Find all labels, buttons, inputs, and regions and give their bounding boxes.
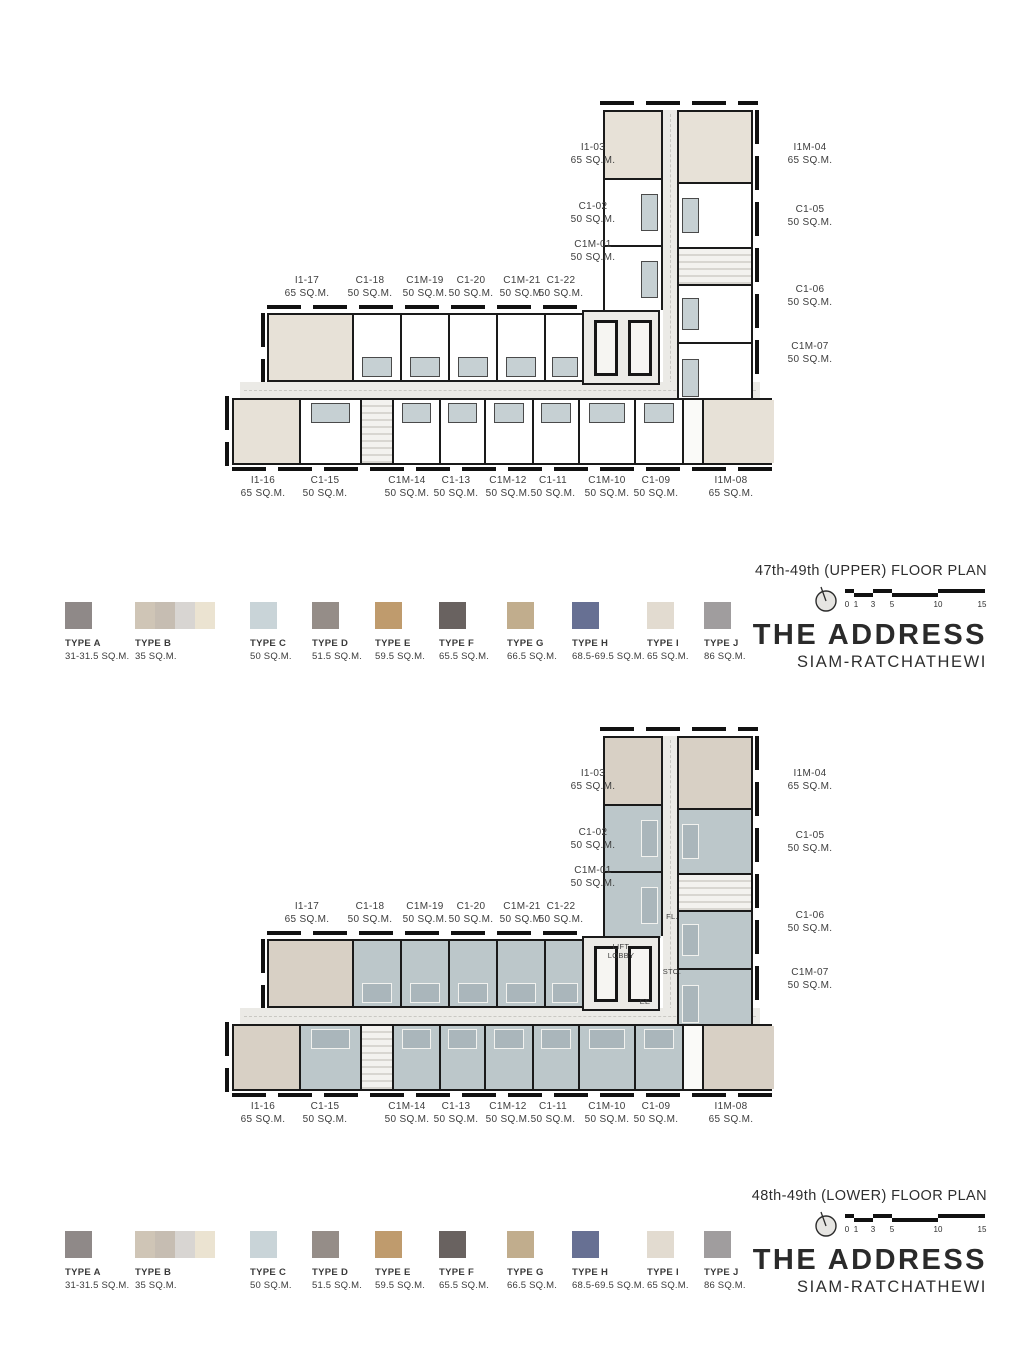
unit-id: I1M-04 [788, 768, 833, 781]
unit-label: C1-1350 SQ.M. [434, 1101, 479, 1126]
unit-cell [269, 941, 352, 1006]
unit-size: 65 SQ.M. [571, 155, 616, 168]
unit-label: C1M-1950 SQ.M. [403, 901, 448, 926]
unit-size: 65 SQ.M. [571, 781, 616, 794]
unit-id: C1M-10 [585, 475, 630, 488]
unit-label: I1-1765 SQ.M. [285, 901, 330, 926]
bathroom-core [410, 983, 440, 1003]
unit-id: C1-13 [434, 1101, 479, 1114]
legend-type: TYPE F [439, 1267, 489, 1278]
service-cell [682, 400, 702, 463]
legend-type: TYPE B [135, 1267, 215, 1278]
bathroom-core [541, 1029, 570, 1049]
unit-id: I1-17 [285, 901, 330, 914]
bathroom-core [641, 194, 658, 230]
unit-label: C1-2050 SQ.M. [449, 275, 494, 300]
unit-id: I1-16 [241, 475, 286, 488]
unit-id: C1-15 [303, 475, 348, 488]
unit-size: 50 SQ.M. [788, 923, 833, 936]
unit-label: I1M-0465 SQ.M. [788, 768, 833, 793]
bathroom-core [552, 357, 577, 377]
unit-size: 50 SQ.M. [486, 488, 531, 501]
unit-size: 65 SQ.M. [285, 914, 330, 927]
unit-size: 50 SQ.M. [788, 217, 833, 230]
unit-id: C1-13 [434, 475, 479, 488]
exterior-wall [261, 313, 265, 382]
unit-size: 50 SQ.M. [571, 878, 616, 891]
scale-segment [873, 589, 892, 593]
legend-swatch [250, 602, 277, 629]
unit-id: C1M-07 [788, 967, 833, 980]
lobby-label: LOBBY [608, 951, 635, 960]
unit-id: I1-03 [571, 142, 616, 155]
bathroom-core [458, 983, 488, 1003]
unit-cell [269, 315, 352, 380]
unit-id: C1M-07 [788, 341, 833, 354]
legend-size: 65.5 SQ.M. [439, 1280, 489, 1291]
bathroom-core [448, 403, 476, 423]
unit-id: C1M-19 [403, 901, 448, 914]
page: I1-0365 SQ.M. C1-0250 SQ.M. C1M-0150 SQ.… [0, 0, 1029, 1356]
exterior-wall [232, 467, 772, 471]
unit-cell [496, 315, 544, 380]
unit-id: C1M-19 [403, 275, 448, 288]
unit-label: C1-1150 SQ.M. [531, 1101, 576, 1126]
unit-id: C1-22 [539, 275, 584, 288]
unit-label: C1M-0150 SQ.M. [571, 865, 616, 890]
unit-size: 50 SQ.M. [539, 288, 584, 301]
unit-size: 50 SQ.M. [788, 297, 833, 310]
unit-label: C1-1550 SQ.M. [303, 475, 348, 500]
bathroom-core [682, 359, 699, 397]
storage-label: STO. [663, 967, 682, 976]
legend-swatch [65, 602, 92, 629]
unit-label: I1-1665 SQ.M. [241, 1101, 286, 1126]
unit-label: C1-0550 SQ.M. [788, 204, 833, 229]
legend-size: 66.5 SQ.M. [507, 1280, 557, 1291]
bathroom-core [641, 261, 658, 297]
unit-size: 50 SQ.M. [788, 354, 833, 367]
plan-title: 47th-49th (UPPER) FLOOR PLAN [725, 563, 987, 579]
unit-label: C1M-1950 SQ.M. [403, 275, 448, 300]
bathroom-core [362, 983, 392, 1003]
scale-segment [854, 1218, 873, 1222]
bathroom-core [362, 357, 392, 377]
bathroom-core [682, 985, 699, 1023]
unit-cell [352, 315, 400, 380]
unit-label: C1-1850 SQ.M. [348, 901, 393, 926]
unit-label: C1-1550 SQ.M. [303, 1101, 348, 1126]
unit-cell [532, 1026, 578, 1089]
legend-item: TYPE J86 SQ.M. [704, 1231, 746, 1291]
unit-id: C1-22 [539, 901, 584, 914]
unit-size: 65 SQ.M. [285, 288, 330, 301]
unit-size: 50 SQ.M. [303, 1114, 348, 1127]
unit-label: C1M-0750 SQ.M. [788, 967, 833, 992]
floor-plan-upper: I1-0365 SQ.M. C1-0250 SQ.M. C1M-0150 SQ.… [0, 0, 1029, 520]
legend-type: TYPE C [250, 1267, 292, 1278]
unit-size: 50 SQ.M. [788, 980, 833, 993]
stairwell [360, 400, 392, 463]
legend-type: TYPE D [312, 1267, 362, 1278]
unit-size: 50 SQ.M. [634, 488, 679, 501]
scale-segment [892, 1218, 938, 1222]
unit-cell [448, 315, 496, 380]
unit-size: 50 SQ.M. [486, 1114, 531, 1127]
legend-swatch [375, 1231, 402, 1258]
floor-plan-lower: FL. LIFTLOBBY STO. EE I1-0365 SQ.M. C1-0… [0, 626, 1029, 1146]
scale-segment [938, 1214, 985, 1218]
legend-swatch [647, 1231, 674, 1258]
legend-swatch [250, 1231, 277, 1258]
exterior-wall [755, 110, 759, 410]
unit-label: C1M-0750 SQ.M. [788, 341, 833, 366]
unit-id: C1-18 [348, 275, 393, 288]
unit-size: 50 SQ.M. [539, 914, 584, 927]
unit-cell [484, 400, 532, 463]
unit-cell [544, 315, 584, 380]
unit-size: 50 SQ.M. [788, 843, 833, 856]
stairwell [679, 247, 751, 284]
scale-segment [845, 589, 854, 593]
bathroom-core [641, 887, 658, 923]
unit-id: C1M-12 [486, 475, 531, 488]
unit-label: C1M-1450 SQ.M. [385, 475, 430, 500]
unit-label: C1-0250 SQ.M. [571, 827, 616, 852]
lift-label: LIFT [608, 942, 635, 951]
legend-item: TYPE G66.5 SQ.M. [507, 1231, 557, 1291]
unit-id: I1-03 [571, 768, 616, 781]
bathroom-core [541, 403, 570, 423]
unit-label: I1-1765 SQ.M. [285, 275, 330, 300]
unit-id: C1-09 [634, 1101, 679, 1114]
unit-label: C1M-1250 SQ.M. [486, 1101, 531, 1126]
unit-id: C1-09 [634, 475, 679, 488]
bathroom-core [448, 1029, 476, 1049]
unit-label: C1M-0150 SQ.M. [571, 239, 616, 264]
unit-cell [234, 1026, 299, 1089]
unit-size: 50 SQ.M. [303, 488, 348, 501]
unit-cell [392, 400, 439, 463]
legend-swatch [507, 1231, 534, 1258]
exterior-wall [600, 101, 758, 105]
unit-cell [234, 400, 299, 463]
unit-label: C1M-1050 SQ.M. [585, 475, 630, 500]
legend-lower: TYPE A31-31.5 SQ.M. TYPE B35 SQ.M. TYPE … [0, 1231, 1029, 1301]
bathroom-core [589, 1029, 625, 1049]
unit-label: C1M-2150 SQ.M. [500, 275, 545, 300]
unit-cell [702, 1026, 774, 1089]
floor-label: FL. [666, 912, 678, 921]
unit-id: C1-11 [531, 1101, 576, 1114]
unit-label: C1M-2150 SQ.M. [500, 901, 545, 926]
legend-item: TYPE B35 SQ.M. [135, 1231, 215, 1291]
legend-item: TYPE A31-31.5 SQ.M. [65, 1231, 129, 1291]
unit-id: I1-17 [285, 275, 330, 288]
unit-size: 65 SQ.M. [788, 155, 833, 168]
bathroom-core [458, 357, 488, 377]
swatch-segment [195, 602, 215, 629]
unit-cell [392, 1026, 439, 1089]
unit-cell [679, 738, 751, 808]
bathroom-core [589, 403, 625, 423]
unit-label: C1-1150 SQ.M. [531, 475, 576, 500]
unit-cell [578, 400, 634, 463]
legend-type: TYPE H [572, 1267, 645, 1278]
unit-size: 50 SQ.M. [385, 488, 430, 501]
legend-size: 35 SQ.M. [135, 1280, 215, 1291]
unit-size: 50 SQ.M. [571, 840, 616, 853]
unit-id: C1-05 [788, 204, 833, 217]
unit-label: I1M-0865 SQ.M. [709, 1101, 754, 1126]
legend-size: 50 SQ.M. [250, 1280, 292, 1291]
legend-swatch [572, 602, 599, 629]
bathroom-core [682, 198, 699, 233]
unit-cell [578, 1026, 634, 1089]
legend-size: 86 SQ.M. [704, 1280, 746, 1291]
legend-type: TYPE J [704, 1267, 746, 1278]
unit-cell [299, 400, 360, 463]
unit-id: I1M-04 [788, 142, 833, 155]
exterior-wall [232, 1093, 772, 1097]
legend-size: 68.5-69.5 SQ.M. [572, 1280, 645, 1291]
unit-size: 50 SQ.M. [348, 288, 393, 301]
unit-label: C1-0550 SQ.M. [788, 830, 833, 855]
legend-swatch [375, 602, 402, 629]
scale-segment [892, 593, 938, 597]
unit-cell [679, 284, 751, 342]
legend-swatch [312, 1231, 339, 1258]
unit-cell [544, 941, 584, 1006]
legend-swatch [65, 1231, 92, 1258]
unit-size: 65 SQ.M. [788, 781, 833, 794]
swatch-segment [135, 602, 155, 629]
legend-swatch [135, 1231, 215, 1258]
legend-item: TYPE F65.5 SQ.M. [439, 1231, 489, 1291]
bathroom-core [506, 983, 536, 1003]
unit-cell [679, 182, 751, 247]
unit-cell [484, 1026, 532, 1089]
unit-cell [400, 941, 448, 1006]
swatch-segment [175, 602, 195, 629]
unit-cell [400, 315, 448, 380]
stairwell [679, 873, 751, 910]
unit-label: C1-0950 SQ.M. [634, 475, 679, 500]
legend-swatch [439, 1231, 466, 1258]
ee-label: EE [640, 997, 651, 1006]
legend-swatch [572, 1231, 599, 1258]
unit-size: 50 SQ.M. [634, 1114, 679, 1127]
unit-size: 50 SQ.M. [434, 1114, 479, 1127]
unit-label: C1-1350 SQ.M. [434, 475, 479, 500]
bathroom-core [494, 403, 524, 423]
bathroom-core [402, 403, 432, 423]
wing-right-column [677, 736, 753, 1036]
unit-label: I1-1665 SQ.M. [241, 475, 286, 500]
unit-size: 50 SQ.M. [434, 488, 479, 501]
unit-id: C1M-14 [385, 1101, 430, 1114]
legend-swatch [135, 602, 215, 629]
corridor [663, 110, 677, 398]
stairwell [360, 1026, 392, 1089]
unit-size: 50 SQ.M. [403, 914, 448, 927]
bathroom-core [410, 357, 440, 377]
unit-label: C1-0250 SQ.M. [571, 201, 616, 226]
unit-id: C1M-12 [486, 1101, 531, 1114]
bathroom-core [682, 298, 699, 329]
bathroom-core [311, 1029, 350, 1049]
unit-cell [439, 400, 484, 463]
bathroom-core [494, 1029, 524, 1049]
scale-segment [854, 593, 873, 597]
unit-id: C1-15 [303, 1101, 348, 1114]
unit-id: C1M-10 [585, 1101, 630, 1114]
bottom-unit-row [232, 398, 772, 465]
unit-id: I1M-08 [709, 475, 754, 488]
unit-label: C1-0950 SQ.M. [634, 1101, 679, 1126]
bathroom-core [644, 403, 674, 423]
bathroom-core [552, 983, 577, 1003]
lift-shaft [628, 320, 652, 376]
unit-size: 50 SQ.M. [403, 288, 448, 301]
unit-id: C1-06 [788, 284, 833, 297]
unit-label: C1-0650 SQ.M. [788, 284, 833, 309]
exterior-wall [267, 931, 582, 935]
service-cell [682, 1026, 702, 1089]
exterior-wall [600, 727, 758, 731]
unit-id: C1-20 [449, 275, 494, 288]
swatch-segment [135, 1231, 155, 1258]
unit-cell [496, 941, 544, 1006]
legend-type: TYPE E [375, 1267, 425, 1278]
legend-swatch [647, 602, 674, 629]
unit-size: 50 SQ.M. [585, 488, 630, 501]
unit-label: I1-0365 SQ.M. [571, 142, 616, 167]
legend-swatch [704, 602, 731, 629]
unit-size: 50 SQ.M. [500, 288, 545, 301]
bottom-unit-row [232, 1024, 772, 1091]
legend-item: TYPE H68.5-69.5 SQ.M. [572, 1231, 645, 1291]
unit-id: C1-20 [449, 901, 494, 914]
unit-size: 65 SQ.M. [241, 1114, 286, 1127]
exterior-wall [225, 396, 229, 466]
bathroom-core [311, 403, 350, 423]
unit-id: I1M-08 [709, 1101, 754, 1114]
unit-size: 50 SQ.M. [500, 914, 545, 927]
unit-id: C1M-01 [571, 865, 616, 878]
legend-size: 59.5 SQ.M. [375, 1280, 425, 1291]
unit-size: 50 SQ.M. [571, 214, 616, 227]
unit-label: C1M-1050 SQ.M. [585, 1101, 630, 1126]
legend-size: 65 SQ.M. [647, 1280, 689, 1291]
unit-label: C1M-1250 SQ.M. [486, 475, 531, 500]
unit-id: C1-02 [571, 201, 616, 214]
unit-label: C1-2250 SQ.M. [539, 275, 584, 300]
unit-size: 50 SQ.M. [585, 1114, 630, 1127]
legend-item: TYPE I65 SQ.M. [647, 1231, 689, 1291]
legend-item: TYPE C50 SQ.M. [250, 1231, 292, 1291]
unit-cell [448, 941, 496, 1006]
unit-id: C1M-21 [500, 901, 545, 914]
lift-core [582, 310, 660, 385]
unit-id: C1-06 [788, 910, 833, 923]
swatch-segment [195, 1231, 215, 1258]
unit-cell [299, 1026, 360, 1089]
unit-id: C1-18 [348, 901, 393, 914]
unit-size: 50 SQ.M. [531, 488, 576, 501]
exterior-wall [261, 939, 265, 1008]
bathroom-core [682, 824, 699, 859]
bathroom-core [402, 1029, 432, 1049]
bathroom-core [644, 1029, 674, 1049]
unit-size: 65 SQ.M. [709, 1114, 754, 1127]
scale-segment [873, 1214, 892, 1218]
unit-id: C1M-14 [385, 475, 430, 488]
unit-size: 50 SQ.M. [348, 914, 393, 927]
unit-id: C1-05 [788, 830, 833, 843]
unit-cell [634, 400, 682, 463]
exterior-wall [267, 305, 582, 309]
unit-size: 50 SQ.M. [385, 1114, 430, 1127]
unit-label: I1M-0465 SQ.M. [788, 142, 833, 167]
legend-item: TYPE D51.5 SQ.M. [312, 1231, 362, 1291]
unit-id: C1-11 [531, 475, 576, 488]
top-unit-row [267, 939, 582, 1008]
unit-label: C1-2050 SQ.M. [449, 901, 494, 926]
unit-size: 50 SQ.M. [531, 1114, 576, 1127]
legend-type: TYPE G [507, 1267, 557, 1278]
bathroom-core [506, 357, 536, 377]
unit-size: 50 SQ.M. [449, 288, 494, 301]
unit-cell [532, 400, 578, 463]
scale-segment [938, 589, 985, 593]
swatch-segment [175, 1231, 195, 1258]
legend-size: 31-31.5 SQ.M. [65, 1280, 129, 1291]
unit-label: C1-1850 SQ.M. [348, 275, 393, 300]
lift-lobby-label: LIFTLOBBY [608, 942, 635, 960]
corridor [663, 736, 677, 1024]
legend-size: 51.5 SQ.M. [312, 1280, 362, 1291]
unit-label: I1M-0865 SQ.M. [709, 475, 754, 500]
legend-item: TYPE E59.5 SQ.M. [375, 1231, 425, 1291]
unit-cell [634, 1026, 682, 1089]
unit-size: 50 SQ.M. [449, 914, 494, 927]
scale-segment [845, 1214, 854, 1218]
exterior-wall [755, 736, 759, 1036]
bathroom-core [641, 820, 658, 856]
lift-shaft [594, 320, 618, 376]
swatch-segment [155, 602, 175, 629]
unit-id: I1-16 [241, 1101, 286, 1114]
legend-swatch [312, 602, 339, 629]
exterior-wall [225, 1022, 229, 1092]
top-unit-row [267, 313, 582, 382]
legend-swatch [704, 1231, 731, 1258]
legend-type: TYPE I [647, 1267, 689, 1278]
unit-size: 50 SQ.M. [571, 252, 616, 265]
unit-size: 65 SQ.M. [709, 488, 754, 501]
unit-cell [439, 1026, 484, 1089]
unit-label: C1-0650 SQ.M. [788, 910, 833, 935]
unit-cell [702, 400, 774, 463]
plan-title: 48th-49th (LOWER) FLOOR PLAN [725, 1188, 987, 1204]
legend-swatch [439, 602, 466, 629]
unit-id: C1-02 [571, 827, 616, 840]
unit-size: 65 SQ.M. [241, 488, 286, 501]
unit-label: C1-2250 SQ.M. [539, 901, 584, 926]
wing-right-column [677, 110, 753, 410]
unit-cell [679, 112, 751, 182]
